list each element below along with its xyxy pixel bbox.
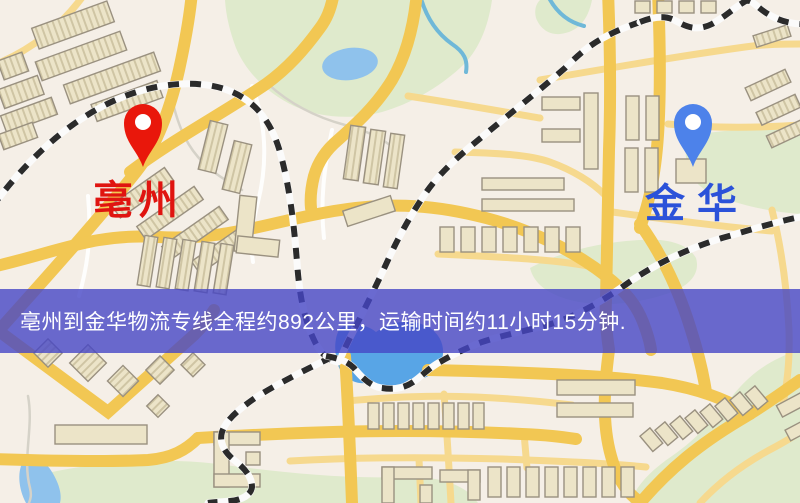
route-info-text: 亳州到金华物流专线全程约892公里，运输时间约11小时15分钟. <box>0 306 626 336</box>
destination-pin-shape <box>674 104 712 167</box>
route-map-screenshot: 亳州 金华 亳州到金华物流专线全程约892公里，运输时间约11小时15分钟. <box>0 0 800 503</box>
destination-pin-hole <box>685 114 701 130</box>
origin-pin-shape <box>124 104 162 167</box>
origin-pin-icon[interactable] <box>120 100 166 172</box>
route-info-banner: 亳州到金华物流专线全程约892公里，运输时间约11小时15分钟. <box>0 289 800 353</box>
destination-city-label: 金华 <box>615 184 779 224</box>
map-canvas[interactable] <box>0 0 800 503</box>
map-image <box>0 0 800 503</box>
origin-pin-hole <box>135 114 151 130</box>
origin-city-label: 亳州 <box>58 181 218 221</box>
destination-pin-icon[interactable] <box>670 100 716 172</box>
